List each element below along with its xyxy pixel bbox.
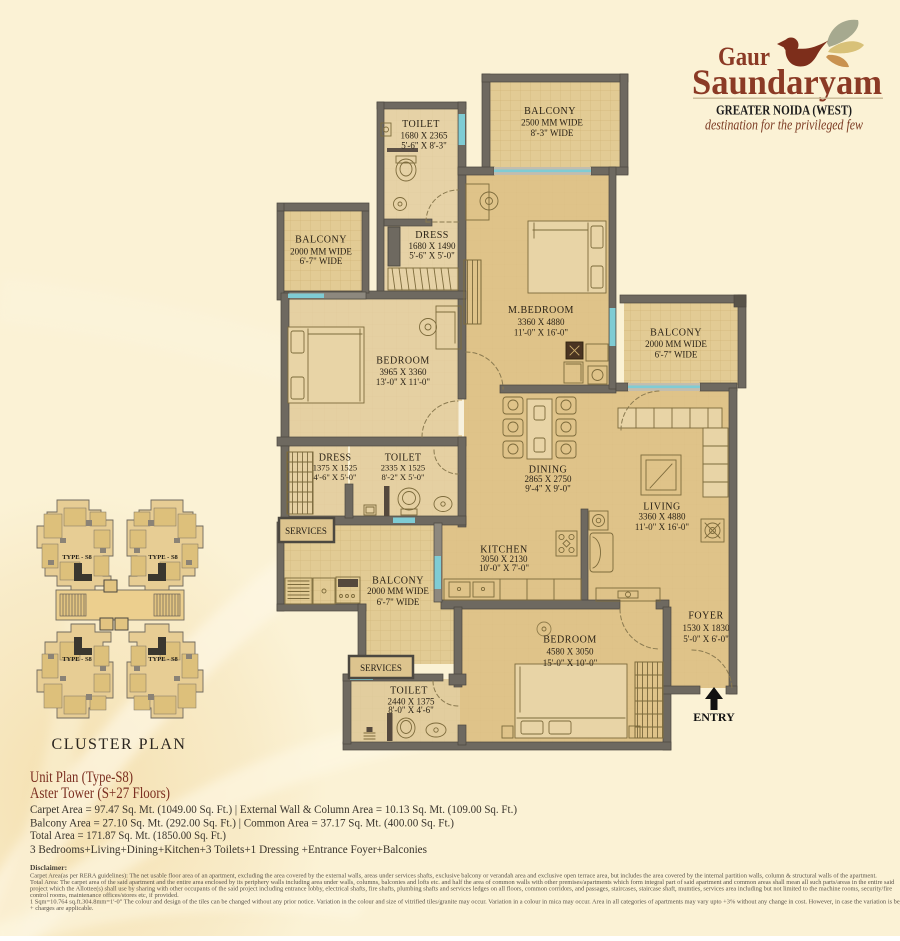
svg-text:SERVICES: SERVICES	[360, 663, 402, 673]
svg-text:2500 MM WIDE: 2500 MM WIDE	[521, 118, 583, 128]
svg-text:DRESS: DRESS	[415, 230, 449, 241]
svg-text:2865 X 2750: 2865 X 2750	[525, 474, 572, 484]
svg-text:2000 MM WIDE: 2000 MM WIDE	[367, 586, 429, 596]
svg-text:1680 X 2365: 1680 X 2365	[401, 131, 448, 141]
svg-text:Unit Plan (Type-S8): Unit Plan (Type-S8)	[30, 769, 133, 786]
svg-text:2335 X 1525: 2335 X 1525	[381, 463, 425, 473]
svg-text:BEDROOM: BEDROOM	[543, 635, 597, 646]
svg-text:2000 MM WIDE: 2000 MM WIDE	[645, 339, 707, 349]
svg-text:BALCONY: BALCONY	[650, 328, 702, 339]
svg-text:3360 X 4880: 3360 X 4880	[518, 317, 565, 327]
svg-text:TYPE - S8: TYPE - S8	[62, 656, 92, 663]
svg-text:6'-7" WIDE: 6'-7" WIDE	[300, 256, 343, 266]
svg-text:8'-3" WIDE: 8'-3" WIDE	[531, 128, 574, 138]
svg-text:Total Area = 171.87 Sq. Mt. (1: Total Area = 171.87 Sq. Mt. (1850.00 Sq.…	[30, 828, 226, 842]
svg-text:TOILET: TOILET	[402, 119, 440, 130]
svg-text:+ charges are applicable.: + charges are applicable.	[30, 905, 94, 912]
svg-text:5'-6" X 5'-0": 5'-6" X 5'-0"	[409, 251, 455, 261]
svg-text:Aster Tower (S+27 Floors): Aster Tower (S+27 Floors)	[30, 785, 170, 802]
svg-text:BALCONY: BALCONY	[372, 576, 424, 587]
svg-text:5'-6" X 8'-3": 5'-6" X 8'-3"	[401, 141, 447, 151]
svg-text:11'-0" X 16'-0": 11'-0" X 16'-0"	[514, 328, 569, 338]
svg-text:6'-7" WIDE: 6'-7" WIDE	[655, 350, 698, 360]
svg-text:9'-4" X 9'-0": 9'-4" X 9'-0"	[525, 484, 571, 494]
svg-text:destination for the privileged: destination for the privileged few	[705, 118, 863, 134]
svg-text:ENTRY: ENTRY	[693, 710, 735, 724]
svg-text:BALCONY: BALCONY	[524, 106, 576, 117]
svg-text:10'-0" X 7'-0": 10'-0" X 7'-0"	[479, 563, 529, 573]
svg-text:1375 X 1525: 1375 X 1525	[313, 463, 357, 473]
svg-text:6'-7" WIDE: 6'-7" WIDE	[377, 597, 420, 607]
svg-text:SERVICES: SERVICES	[285, 526, 327, 536]
svg-text:Disclaimer:: Disclaimer:	[30, 863, 67, 872]
svg-text:4'-6" X 5'-0": 4'-6" X 5'-0"	[313, 472, 356, 482]
svg-text:CLUSTER PLAN: CLUSTER PLAN	[52, 736, 187, 753]
svg-text:8'-0" X 4'-6": 8'-0" X 4'-6"	[388, 705, 434, 715]
svg-text:8'-2" X 5'-0": 8'-2" X 5'-0"	[381, 472, 424, 482]
svg-text:GREATER NOIDA (WEST): GREATER NOIDA (WEST)	[716, 103, 852, 118]
svg-text:FOYER: FOYER	[688, 611, 723, 622]
svg-text:TYPE - S8: TYPE - S8	[62, 554, 92, 561]
svg-text:13'-0" X 11'-0": 13'-0" X 11'-0"	[376, 377, 431, 387]
svg-text:Carpet Area = 97.47 Sq. Mt. (1: Carpet Area = 97.47 Sq. Mt. (1049.00 Sq.…	[30, 802, 517, 816]
svg-text:4580 X 3050: 4580 X 3050	[547, 647, 594, 657]
svg-text:1530 X 1830: 1530 X 1830	[683, 623, 730, 633]
svg-text:TYPE - S8: TYPE - S8	[148, 554, 178, 561]
svg-text:Saundaryam: Saundaryam	[692, 62, 882, 102]
svg-text:15'-0" X 10'-0": 15'-0" X 10'-0"	[543, 658, 598, 668]
svg-text:BALCONY: BALCONY	[295, 235, 347, 246]
svg-text:BEDROOM: BEDROOM	[376, 356, 430, 367]
svg-text:3 Bedrooms+Living+Dining+Kitch: 3 Bedrooms+Living+Dining+Kitchen+3 Toile…	[30, 842, 427, 856]
svg-text:TOILET: TOILET	[390, 686, 428, 697]
svg-text:1 Sqm=10.764 sq.ft.304.8mm=1'-: 1 Sqm=10.764 sq.ft.304.8mm=1'-0" The col…	[30, 899, 900, 906]
svg-text:5'-0" X 6'-0": 5'-0" X 6'-0"	[683, 634, 729, 644]
svg-text:3965 X 3360: 3965 X 3360	[380, 367, 427, 377]
svg-text:3360 X 4880: 3360 X 4880	[639, 512, 686, 522]
svg-text:1680 X 1490: 1680 X 1490	[409, 241, 456, 251]
svg-text:2000 MM WIDE: 2000 MM WIDE	[290, 247, 352, 257]
svg-text:11'-0" X 16'-0": 11'-0" X 16'-0"	[635, 522, 690, 532]
svg-text:TYPE - S8: TYPE - S8	[148, 656, 178, 663]
svg-text:M.BEDROOM: M.BEDROOM	[508, 305, 574, 316]
